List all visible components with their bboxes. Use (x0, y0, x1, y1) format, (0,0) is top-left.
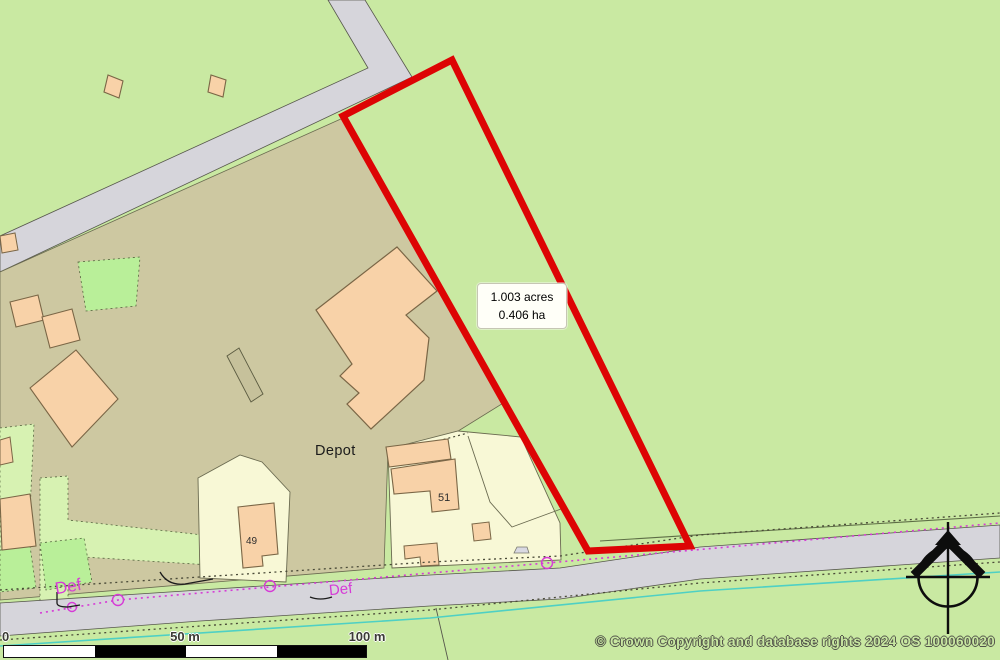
scale-label-fifty: 50 m (157, 629, 213, 644)
shed (472, 522, 491, 541)
depot-label: Depot (315, 443, 356, 459)
plot-area-acres: 1.003 acres (480, 288, 564, 306)
green-parcel (0, 546, 36, 592)
scale-label-hundred: 100 m (335, 629, 399, 644)
scale-bar-segment (277, 646, 366, 657)
building (0, 494, 36, 550)
scale-bar (3, 645, 367, 658)
house-number-51: 51 (438, 492, 450, 504)
scale-label-zero: 0 (2, 629, 9, 644)
house-number-49: 49 (246, 536, 257, 547)
def-label-east: Def (328, 580, 353, 599)
copyright-attribution: © Crown Copyright and database rights 20… (596, 634, 995, 649)
plot-area-hectares: 0.406 ha (480, 306, 564, 324)
green-parcel (78, 257, 140, 311)
building (0, 233, 18, 253)
road-feature (514, 547, 529, 553)
map-viewport[interactable]: 1.003 acres 0.406 ha Depot 51 49 Def Def… (0, 0, 1000, 660)
scale-bar-segment (95, 646, 186, 657)
plot-area-label: 1.003 acres 0.406 ha (477, 283, 567, 329)
map-canvas (0, 0, 1000, 660)
